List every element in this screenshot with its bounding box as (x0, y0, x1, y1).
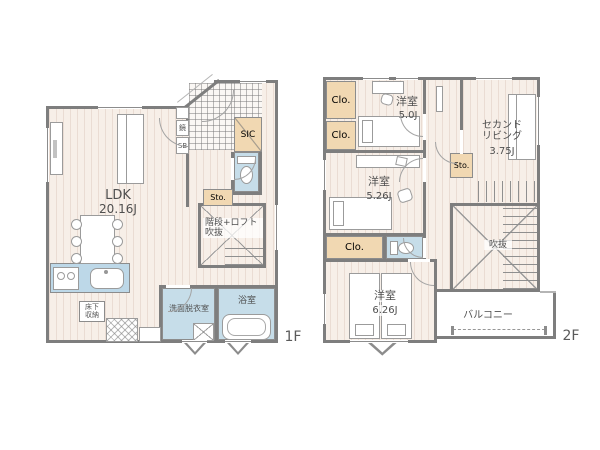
pillow (333, 201, 344, 226)
shutter-mark (184, 343, 206, 355)
window (98, 106, 142, 109)
balcony-dashed-line (453, 329, 545, 330)
closet-c: Clo. (326, 236, 383, 259)
dining-table (80, 215, 115, 264)
bedroom-626-name: 洋室 (366, 290, 404, 302)
bedroom-526-name: 洋室 (361, 176, 397, 188)
sic-label: SIC (241, 130, 256, 140)
shutter-mark (368, 343, 397, 356)
door-opening (423, 238, 426, 258)
window (46, 128, 49, 182)
toilet-tank (390, 241, 398, 255)
tv (53, 140, 57, 158)
storage-1f: Sto. (203, 189, 233, 206)
chair (71, 219, 82, 230)
bathtub-inner (227, 318, 266, 336)
window (323, 160, 326, 190)
door-leaf (436, 86, 443, 112)
wall (186, 148, 189, 207)
cabinet (139, 327, 161, 342)
closet-b: Clo. (326, 121, 356, 150)
wall (231, 192, 262, 195)
stair-loft-void-label: 階段+ロフト 吹抜 (203, 218, 263, 238)
window (396, 77, 418, 80)
balcony-edge (540, 291, 556, 293)
bedroom-626-size: 6.26J (364, 305, 406, 316)
underfloor-storage: 床下 収納 (79, 301, 105, 322)
floor1-label: 1F (280, 330, 306, 346)
balcony-post (451, 326, 454, 335)
wall (434, 259, 437, 343)
chair (71, 236, 82, 247)
wall (323, 150, 426, 153)
door-opening (460, 130, 463, 154)
closet-a-label: Clo. (332, 95, 351, 106)
chair (112, 253, 123, 264)
balcony-rail (553, 292, 556, 339)
stair-treads-1f (225, 248, 263, 265)
stair-landing-2f (478, 181, 537, 202)
window (323, 294, 326, 324)
wall (198, 265, 266, 268)
storage-1f-label: Sto. (210, 193, 226, 202)
entrance-door (240, 80, 266, 83)
balcony-post (544, 326, 547, 335)
burner (67, 272, 75, 280)
desk (372, 81, 404, 94)
chair (112, 219, 123, 230)
ldk-size: 20.16J (86, 203, 150, 216)
balcony-rail (437, 336, 556, 339)
bathroom-label: 浴室 (232, 296, 262, 306)
second-living-name: セカンド リビング (477, 120, 527, 142)
closet-c-label: Clo. (345, 242, 364, 253)
burner (57, 272, 65, 280)
door-opening (423, 114, 426, 140)
floor-plan-canvas: 鏡 SB SIC Sto. 階段+ロフト 吹抜 洗面脱衣室 浴室 床下 収納 (0, 0, 600, 450)
window (363, 77, 389, 80)
wall (259, 152, 262, 195)
second-living-size: 3.75J (481, 146, 523, 157)
window (476, 77, 512, 80)
wall (263, 203, 266, 268)
shutter-mark (227, 343, 249, 355)
closet-a: Clo. (326, 81, 356, 119)
balcony-label: バルコニー (448, 310, 528, 321)
void-label: 吹抜 (484, 240, 512, 250)
bedroom-526-size: 5.26J (358, 191, 400, 202)
pillow (362, 120, 373, 143)
bedroom-50-name: 洋室 (388, 96, 426, 108)
sofa (117, 114, 144, 184)
door-opening (423, 158, 426, 182)
washing-machine (193, 323, 214, 341)
pillow (355, 324, 374, 336)
shoe-in-closet: SIC (234, 117, 262, 152)
window (537, 97, 540, 145)
pillow (387, 324, 406, 336)
floor2-label: 2F (558, 329, 584, 345)
window (275, 205, 278, 250)
chair (71, 253, 82, 264)
f1-stair-landing (234, 83, 262, 117)
deck-lattice (106, 318, 138, 342)
closet-b-label: Clo. (332, 130, 351, 141)
underfloor-storage-label: 床下 収納 (85, 304, 99, 319)
faucet (104, 270, 108, 274)
chair (112, 236, 123, 247)
